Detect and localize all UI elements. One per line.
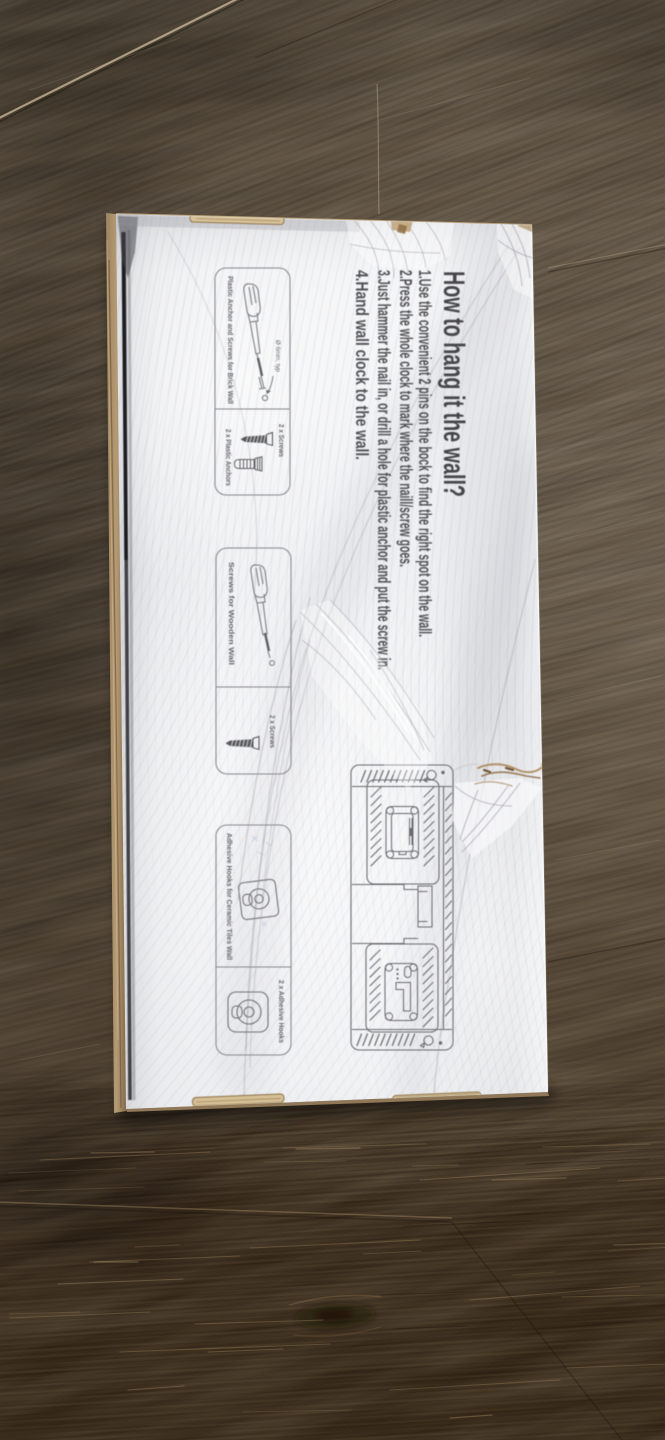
svg-text:Ø 6mm, typ: Ø 6mm, typ	[274, 340, 281, 372]
svg-text:3.Just hammer the nail in, or: 3.Just hammer the nail in, or drill a ho…	[374, 270, 394, 670]
svg-text:2 x Plastic Anchors: 2 x Plastic Anchors	[224, 429, 231, 486]
svg-text:Plastic Anchor and Screws for: Plastic Anchor and Screws for Brick Wall	[226, 276, 235, 404]
svg-text:How to hang it the wall?: How to hang it the wall?	[437, 271, 470, 497]
svg-text:Adhesive Hooks for Ceramic Til: Adhesive Hooks for Ceramic Tiles Wall	[225, 833, 234, 960]
svg-text:4.Hand wall clock to the wall.: 4.Hand wall clock to the wall.	[352, 270, 372, 460]
svg-text:1.Use the convenient 2 pins on: 1.Use the convenient 2 pins on the bock …	[415, 270, 435, 637]
svg-text:2 x Adhesive Hooks: 2 x Adhesive Hooks	[277, 980, 284, 1043]
svg-text:Screws for Wooden Wall: Screws for Wooden Wall	[227, 562, 236, 665]
svg-text:2 x Screws: 2 x Screws	[277, 424, 284, 457]
svg-text:2.Press the whole clock to mar: 2.Press the whole clock to mark where th…	[396, 270, 416, 567]
